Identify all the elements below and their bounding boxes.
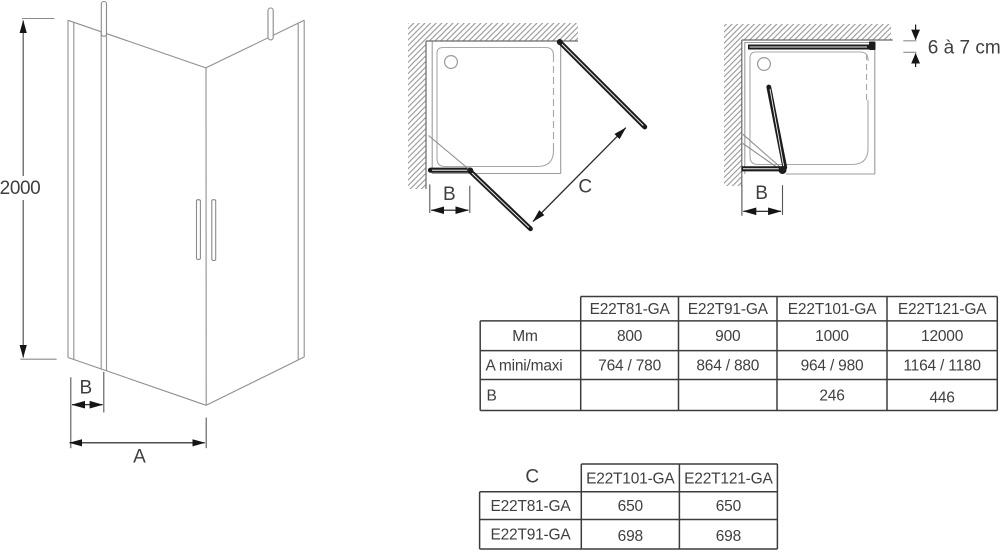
svg-text:E22T121-GA: E22T121-GA [898, 301, 987, 318]
svg-text:698: 698 [716, 528, 741, 545]
svg-text:6 à 7 cm: 6 à 7 cm [928, 38, 1000, 59]
svg-text:E22T91-GA: E22T91-GA [490, 527, 571, 544]
svg-text:650: 650 [618, 498, 644, 515]
svg-text:Mm: Mm [512, 328, 537, 345]
svg-text:E22T101-GA: E22T101-GA [788, 301, 877, 318]
svg-text:C: C [578, 176, 592, 197]
svg-text:650: 650 [716, 498, 742, 515]
svg-text:E22T121-GA: E22T121-GA [684, 470, 773, 487]
svg-text:B: B [755, 183, 768, 204]
svg-text:1164 / 1180: 1164 / 1180 [903, 358, 981, 375]
svg-text:E22T81-GA: E22T81-GA [590, 301, 671, 318]
svg-text:864 / 880: 864 / 880 [696, 358, 759, 375]
svg-text:900: 900 [715, 328, 741, 345]
svg-text:2000: 2000 [0, 178, 40, 199]
svg-text:C: C [525, 467, 539, 488]
svg-text:E22T81-GA: E22T81-GA [490, 498, 571, 515]
svg-text:1000: 1000 [815, 328, 849, 345]
svg-text:A mini/maxi: A mini/maxi [486, 358, 563, 375]
svg-text:A: A [133, 447, 146, 468]
svg-text:446: 446 [929, 389, 954, 406]
svg-text:800: 800 [617, 328, 643, 345]
svg-text:12000: 12000 [921, 328, 964, 345]
svg-text:B: B [79, 378, 92, 399]
svg-text:698: 698 [618, 528, 643, 545]
svg-text:B: B [487, 387, 497, 404]
svg-text:764 / 780: 764 / 780 [598, 358, 661, 375]
svg-text:246: 246 [819, 387, 844, 404]
svg-text:B: B [443, 184, 456, 205]
svg-text:E22T91-GA: E22T91-GA [688, 301, 769, 318]
svg-text:E22T101-GA: E22T101-GA [586, 470, 675, 487]
svg-text:964 / 980: 964 / 980 [801, 358, 864, 375]
